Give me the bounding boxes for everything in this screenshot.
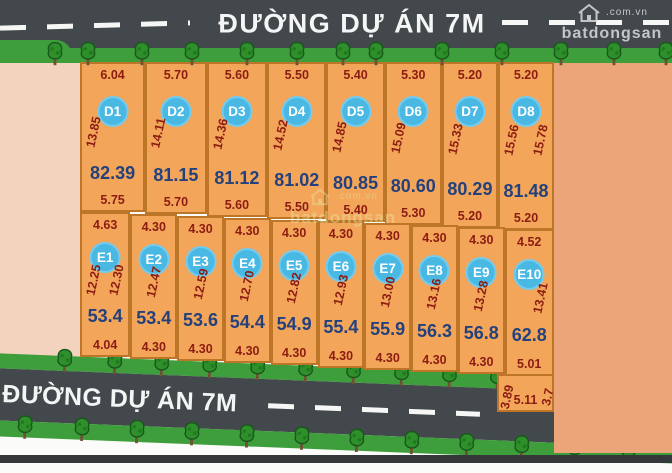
- dimension-bottom: 5.20: [458, 209, 482, 223]
- plot-area: 62.8: [512, 325, 547, 346]
- plot-area: 56.8: [464, 323, 499, 344]
- dimension-bottom: 4.30: [376, 351, 400, 365]
- dimension-bottom: 5.70: [164, 195, 188, 209]
- dimension-side-left: 15.56: [502, 123, 522, 157]
- tree-icon: [45, 41, 65, 66]
- dimension-bottom: 5.01: [517, 357, 541, 371]
- watermark-brand: batdongsan: [562, 26, 663, 42]
- plot-cell-e7: 4.30E713.0055.94.30: [364, 223, 411, 369]
- dimension-side: 15.09: [388, 121, 408, 155]
- dimension-bottom: 5.11: [514, 393, 538, 407]
- bottom-border-bar: [0, 455, 672, 463]
- dimension-top: 4.30: [376, 229, 400, 243]
- tree-icon: [182, 41, 202, 66]
- dimension-side: 13.85: [84, 115, 104, 149]
- plot-area: 55.9: [370, 319, 405, 340]
- dimension-top: 4.52: [517, 235, 541, 249]
- watermark-domain: .com.vn: [606, 8, 648, 18]
- dimension-bottom: 4.30: [329, 349, 353, 363]
- house-icon: [576, 3, 602, 23]
- dimension-top: 4.30: [142, 220, 166, 234]
- plot-cell-d2: 5.70D214.1181.155.70: [145, 62, 207, 214]
- dimension-side: 14.11: [148, 117, 168, 150]
- plot-area: 53.6: [183, 310, 218, 331]
- plot-area: 81.48: [504, 181, 549, 202]
- dimension-bottom: 5.75: [100, 193, 124, 207]
- plot-cell-e4: 4.30E412.7054.44.30: [224, 218, 271, 364]
- dimension-bottom: 4.30: [422, 353, 446, 367]
- tree-icon: [366, 41, 386, 66]
- plot-cell-e2: 4.30E212.4753.44.30: [130, 214, 177, 359]
- tree-icon: [287, 41, 307, 66]
- plot-area: 81.12: [214, 168, 259, 189]
- plot-cell-d7: 5.20D715.3380.295.20: [442, 62, 498, 228]
- dimension-top: 4.30: [329, 227, 353, 241]
- dimension-side: 15.33: [445, 122, 465, 156]
- tree-icon: [656, 41, 672, 66]
- plot-area: 80.29: [447, 179, 492, 200]
- tree-icon: [492, 41, 512, 66]
- dimension-top: 5.30: [401, 68, 425, 82]
- dimension-bottom: 4.30: [282, 346, 306, 360]
- dimension-bottom: 5.60: [225, 198, 249, 212]
- plot-cell-e6: 4.30E612.9355.44.30: [318, 221, 365, 367]
- dimension-bottom: 4.30: [142, 340, 166, 354]
- house-icon: [308, 188, 332, 206]
- dimension-top: 5.20: [514, 68, 538, 82]
- plot-area: 54.4: [230, 312, 265, 333]
- dimension-side-right: 3.7: [539, 387, 556, 407]
- plot-cell-e1: 4.63E112.2512.3053.44.04: [80, 212, 130, 357]
- plot-area: 53.4: [136, 308, 171, 329]
- dimension-side: 14.36: [210, 118, 230, 152]
- dimension-side: 14.52: [271, 118, 291, 152]
- plot-cell-extension: 3.893.75.11: [497, 374, 554, 412]
- watermark: .com.vn batdongsan: [556, 3, 668, 42]
- dimension-top: 4.30: [422, 231, 446, 245]
- tree-icon: [551, 41, 571, 66]
- tree-icon: [604, 41, 624, 66]
- dimension-top: 4.63: [93, 218, 117, 232]
- dimension-side-right: 15.78: [530, 123, 550, 157]
- plot-area: 56.3: [417, 321, 452, 342]
- plot-cell-e3: 4.30E312.5953.64.30: [177, 216, 224, 362]
- plot-cell-d1: 6.04D113.8582.395.75: [80, 62, 145, 212]
- plot-area: 55.4: [323, 317, 358, 338]
- dimension-top: 6.04: [100, 68, 124, 82]
- dimension-top: 5.70: [164, 68, 188, 82]
- plot-area: 82.39: [90, 163, 135, 184]
- plot-area: 53.4: [88, 306, 123, 327]
- plots-layer: 6.04D113.8582.395.755.70D214.1181.155.70…: [0, 0, 672, 463]
- dimension-top: 5.50: [285, 68, 309, 82]
- plot-cell-e9: 4.30E913.2856.84.30: [458, 227, 505, 374]
- dimension-top: 4.30: [469, 233, 493, 247]
- watermark-domain: .com.vn: [336, 192, 378, 202]
- dimension-bottom: 4.04: [93, 338, 117, 352]
- dimension-side-left: 12.25: [84, 263, 104, 297]
- plot-area: 81.15: [153, 165, 198, 186]
- plot-cell-d3: 5.60D314.3681.125.60: [207, 62, 267, 217]
- dimension-bottom: 4.30: [235, 344, 259, 358]
- plot-area: 54.9: [277, 314, 312, 335]
- plot-cell-e8: 4.30E813.1656.34.30: [411, 225, 458, 371]
- dimension-bottom: 5.20: [514, 211, 538, 225]
- dimension-bottom: 4.30: [469, 355, 493, 369]
- tree-icon: [132, 41, 152, 66]
- watermark: .com.vn batdongsan: [268, 188, 418, 226]
- dimension-top: 4.30: [188, 222, 212, 236]
- plot-cell-d8: 5.20D815.5615.7881.485.20: [498, 62, 554, 230]
- dimension-top: 4.30: [282, 226, 306, 240]
- dimension-bottom: 4.30: [188, 342, 212, 356]
- dimension-top: 5.20: [458, 68, 482, 82]
- dimension-top: 4.30: [235, 224, 259, 238]
- watermark-brand: batdongsan: [290, 209, 396, 226]
- dimension-side: 14.85: [330, 120, 350, 154]
- dimension-top: 5.60: [225, 68, 249, 82]
- tree-icon: [432, 41, 452, 66]
- dimension-top: 5.40: [343, 68, 367, 82]
- tree-icon: [78, 41, 98, 66]
- plot-cell-e10: 4.52E1013.4162.85.01: [505, 229, 554, 376]
- plot-cell-e5: 4.30E512.8254.94.30: [271, 220, 318, 366]
- tree-icon: [333, 41, 353, 66]
- plot-label: D7: [454, 96, 485, 127]
- tree-icon: [237, 41, 257, 66]
